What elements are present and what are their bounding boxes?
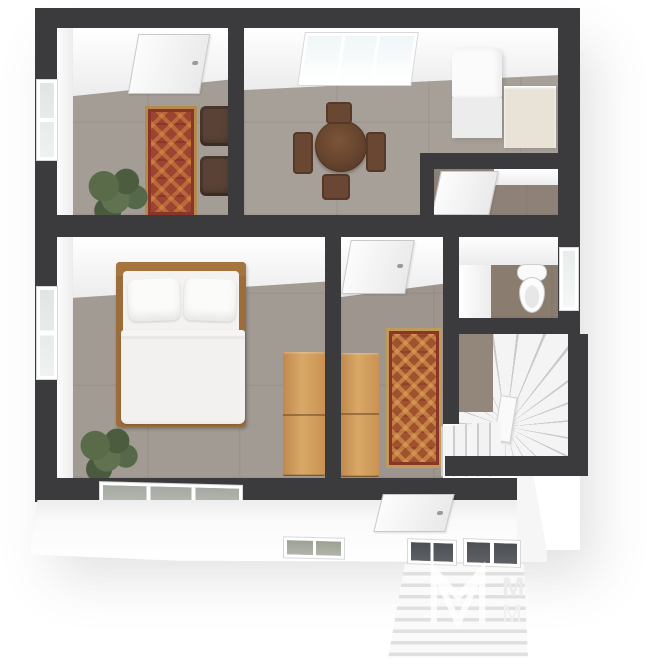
watermark-m-monogram-icon [427,558,489,628]
bathroom-back-wall-face [459,237,558,265]
red-runner-rug-1 [145,106,197,218]
hallway-dresser [341,353,379,477]
facade-window-light [284,537,344,559]
dining-chair-north [326,102,352,124]
dining-chair-east [366,132,386,172]
bedroom-left-window [37,287,57,379]
tall-white-cabinet-lower [452,98,502,138]
wall-bedroom-hallway [325,237,341,478]
sitting-room-left-wall-face [55,28,73,215]
wall-middle-horizontal [35,215,580,237]
window-panes [302,36,414,82]
closet-door [431,171,498,215]
watermark-text-top: M [502,572,525,603]
front-door [373,494,454,532]
wall-closet-top [420,153,580,169]
bed-pillow-2 [183,278,236,322]
staircase-landing-patch [459,334,493,412]
wall-stairs-bottom [445,456,588,476]
sitting-room-left-window [37,80,57,160]
wall-top [40,8,578,28]
door-handle [397,264,404,268]
window-panes [40,83,54,157]
window-panes [40,290,54,376]
dresser-drawer-split [283,414,325,416]
door-handle [192,61,199,65]
red-runner-rug-2 [386,328,442,468]
bedroom-left-wall-face [55,237,73,478]
bed-duvet [121,330,245,424]
potted-plant-1 [84,168,150,220]
dining-room-triple-window [298,33,417,85]
closet-back-wall-face [494,169,558,185]
window-panes [563,251,575,307]
wall-closet-left [420,153,434,237]
bedroom-dresser [283,352,325,476]
window-panes [287,540,341,555]
hallway-door [341,240,415,294]
dining-chair-west [293,132,313,174]
wall-bathroom-bottom [443,318,580,334]
watermark-text-bottom: M [502,600,522,628]
bathroom-right-window [560,248,578,310]
kitchen-counter [504,86,556,148]
wall-right-lower [568,334,588,476]
door-handle [436,511,443,515]
wall-sitting-dining [228,8,244,237]
dining-chair-south [322,174,350,200]
tall-white-cabinet [452,48,502,98]
sitting-room-door [128,34,211,94]
bed-pillow-1 [127,278,180,322]
floor-plan-scene: M M [0,0,647,667]
potted-plant-2 [76,428,140,478]
dresser-drawer-split [341,413,379,415]
round-dining-table [315,120,367,172]
